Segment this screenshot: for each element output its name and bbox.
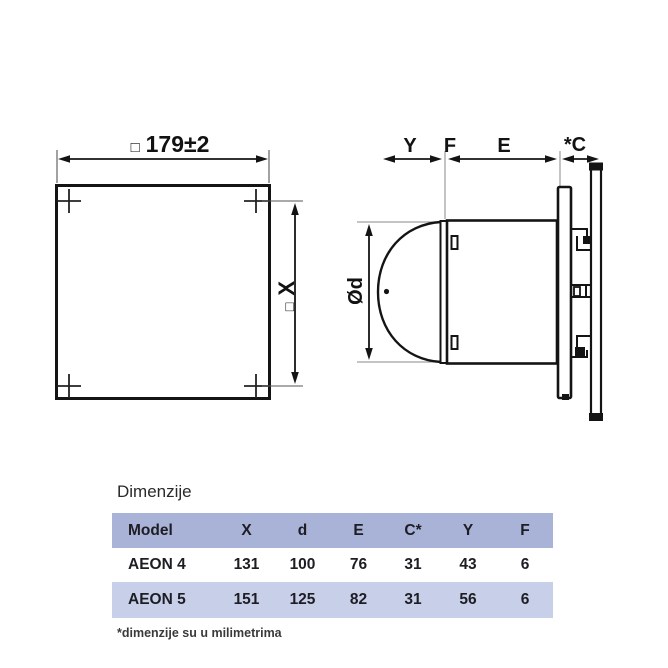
column-header-f: F — [497, 522, 553, 540]
dim-e-label: E — [497, 135, 510, 157]
value-d: 125 — [275, 591, 330, 609]
side-view-dimensions: Y F E *C — [383, 134, 599, 163]
arrowhead-right-icon — [256, 155, 268, 163]
value-e: 82 — [330, 591, 387, 609]
diameter-dimension: Ød — [345, 224, 373, 360]
model-name: AEON 4 — [112, 556, 218, 574]
column-header-model: Model — [112, 522, 218, 540]
value-y: 43 — [439, 556, 497, 574]
value-x: 151 — [218, 591, 275, 609]
arrowhead-up-icon — [291, 203, 299, 215]
arrowhead-down-icon — [291, 372, 299, 384]
front-width-dimension: □179±2 — [57, 131, 269, 183]
dimensions-table: Model X d E C* Y F AEON 4 131 100 76 31 … — [112, 513, 553, 618]
mounting-plate-foot — [562, 394, 569, 400]
table-row-aeon4: AEON 4 131 100 76 31 43 6 — [112, 548, 553, 582]
front-cover — [591, 166, 601, 419]
section-title: Dimenzije — [117, 482, 192, 502]
table-header-row: Model X d E C* Y F — [112, 513, 553, 548]
arrowhead-left-icon — [383, 155, 395, 163]
arrowhead-right-icon — [587, 155, 599, 163]
technical-drawings: □179±2 □X — [0, 0, 668, 470]
table-row-aeon5: AEON 5 151 125 82 31 56 6 — [112, 582, 553, 618]
column-header-c: C* — [387, 522, 439, 540]
value-y: 56 — [439, 591, 497, 609]
dim-f-label: F — [444, 135, 456, 157]
side-view-drawing: Ød — [345, 134, 603, 421]
front-cover-bottom-cap — [589, 413, 603, 421]
value-d: 100 — [275, 556, 330, 574]
body-clip — [452, 236, 458, 249]
body-clip — [452, 336, 458, 349]
bottom-clip-block — [575, 347, 585, 356]
front-height-dimension-label: □X — [274, 281, 299, 311]
column-header-e: E — [330, 522, 387, 540]
cover-clips — [571, 229, 593, 357]
top-clip-arm — [571, 229, 587, 236]
front-width-dimension-label: □179±2 — [131, 131, 210, 157]
units-footnote: *dimenzije su u milimetrima — [117, 626, 282, 640]
middle-clip-block — [574, 287, 580, 296]
column-header-d: d — [275, 522, 330, 540]
arrowhead-right-icon — [545, 155, 557, 163]
dimension-sheet: □179±2 □X — [0, 0, 668, 668]
diameter-dimension-label: Ød — [345, 277, 367, 305]
arrowhead-left-icon — [58, 155, 70, 163]
value-f: 6 — [497, 556, 553, 574]
column-header-y: Y — [439, 522, 497, 540]
arrowhead-right-icon — [430, 155, 442, 163]
fan-body-outline — [447, 221, 557, 364]
front-view-drawing: □179±2 □X — [57, 131, 304, 399]
dome-center-dot — [384, 289, 389, 294]
value-e: 76 — [330, 556, 387, 574]
column-header-x: X — [218, 522, 275, 540]
mounting-plate — [558, 187, 571, 398]
arrowhead-up-icon — [365, 224, 373, 236]
value-c: 31 — [387, 591, 439, 609]
value-c: 31 — [387, 556, 439, 574]
value-x: 131 — [218, 556, 275, 574]
front-panel-outline — [57, 186, 270, 399]
model-name: AEON 5 — [112, 591, 218, 609]
front-cover-top-cap — [589, 163, 603, 171]
arrowhead-left-icon — [562, 155, 574, 163]
dim-y-label: Y — [403, 135, 417, 157]
arrowhead-down-icon — [365, 348, 373, 360]
value-f: 6 — [497, 591, 553, 609]
dim-c-label: *C — [564, 134, 586, 156]
